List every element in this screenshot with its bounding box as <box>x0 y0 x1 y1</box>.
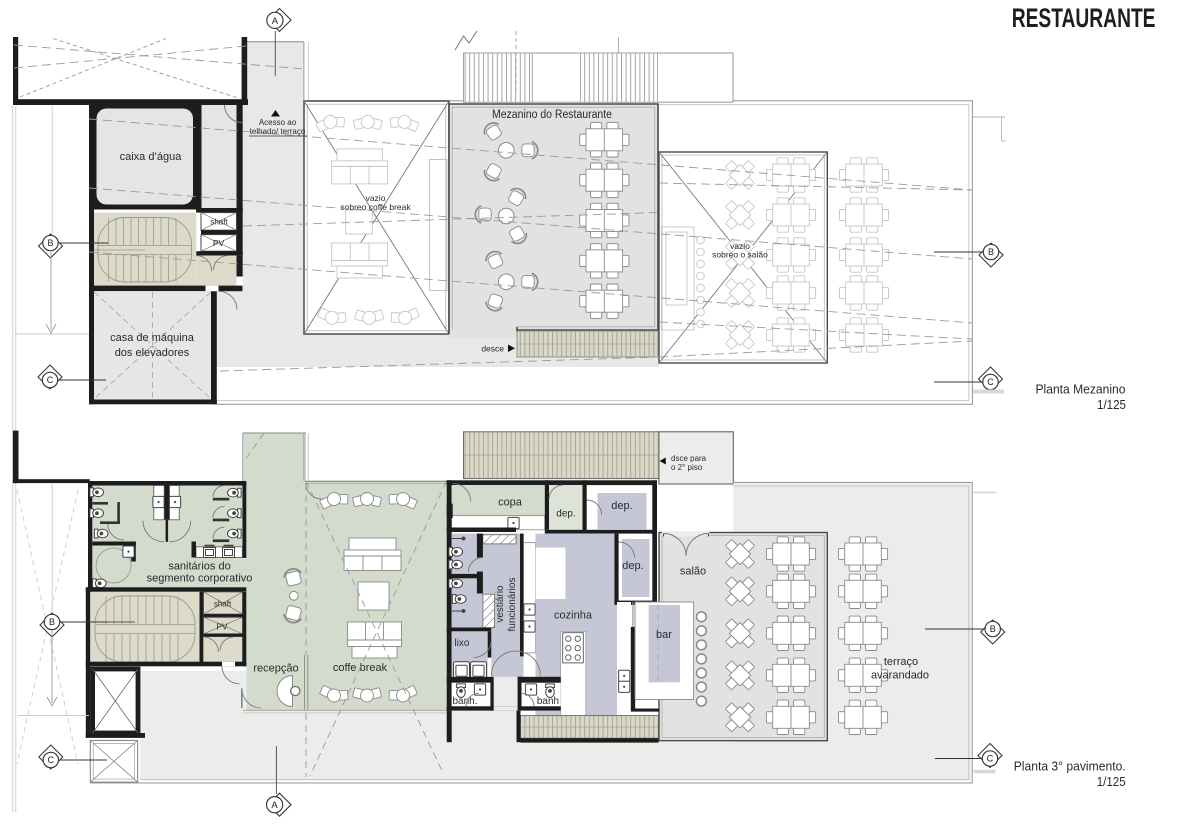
svg-text:funcionários: funcionários <box>507 578 518 632</box>
svg-text:dep.: dep. <box>556 509 575 520</box>
svg-text:shaft: shaft <box>210 218 228 227</box>
svg-text:1/125: 1/125 <box>1097 774 1126 789</box>
svg-text:cozinha: cozinha <box>554 610 593 622</box>
svg-text:bar: bar <box>656 629 672 641</box>
svg-text:C: C <box>987 377 994 387</box>
svg-text:B: B <box>988 247 994 257</box>
svg-text:C: C <box>48 755 55 765</box>
svg-text:PV: PV <box>216 622 228 632</box>
svg-text:Mezanino do Restaurante: Mezanino do Restaurante <box>492 109 612 121</box>
svg-text:banh.: banh. <box>452 696 477 707</box>
svg-text:RESTAURANTE: RESTAURANTE <box>1012 3 1156 33</box>
svg-text:A: A <box>271 800 278 811</box>
svg-text:salão: salão <box>680 566 706 578</box>
svg-text:dsce para: dsce para <box>671 454 707 463</box>
svg-text:C: C <box>987 754 994 764</box>
svg-text:copa: copa <box>498 497 523 509</box>
svg-text:vestiário: vestiário <box>495 585 506 623</box>
svg-text:desce: desce <box>481 344 504 354</box>
svg-text:C: C <box>47 375 54 385</box>
svg-text:sobreo o salão: sobreo o salão <box>712 250 768 260</box>
svg-text:dos elevadores: dos elevadores <box>115 347 190 359</box>
svg-text:recepção: recepção <box>253 663 298 675</box>
svg-text:segmento corporativo: segmento corporativo <box>147 573 253 585</box>
svg-text:caixa d’água: caixa d’água <box>120 151 183 163</box>
svg-text:terraço: terraço <box>884 656 918 668</box>
svg-text:B: B <box>47 238 53 248</box>
svg-text:Planta Mezanino: Planta Mezanino <box>1036 382 1126 397</box>
svg-text:telhado/ terraço: telhado/ terraço <box>250 127 306 136</box>
svg-text:A: A <box>272 16 279 27</box>
svg-text:sobreo coffe break: sobreo coffe break <box>340 202 411 212</box>
svg-text:dep.: dep. <box>622 560 643 572</box>
svg-text:dep.: dep. <box>611 500 632 512</box>
svg-text:B: B <box>990 624 996 634</box>
svg-text:sanitários do: sanitários do <box>168 561 230 573</box>
svg-text:shaft: shaft <box>214 600 232 609</box>
svg-text:PV: PV <box>213 238 225 248</box>
svg-text:lixo: lixo <box>454 638 469 649</box>
svg-text:o 2° piso: o 2° piso <box>671 463 703 472</box>
svg-text:casa de máquina: casa de máquina <box>110 332 195 344</box>
svg-text:Planta 3° pavimento.: Planta 3° pavimento. <box>1014 759 1126 774</box>
svg-text:banh: banh <box>537 696 559 707</box>
svg-text:B: B <box>49 617 55 627</box>
svg-text:Acesso ao: Acesso ao <box>259 118 297 127</box>
svg-text:avarandado: avarandado <box>871 670 929 682</box>
svg-text:1/125: 1/125 <box>1097 397 1126 412</box>
